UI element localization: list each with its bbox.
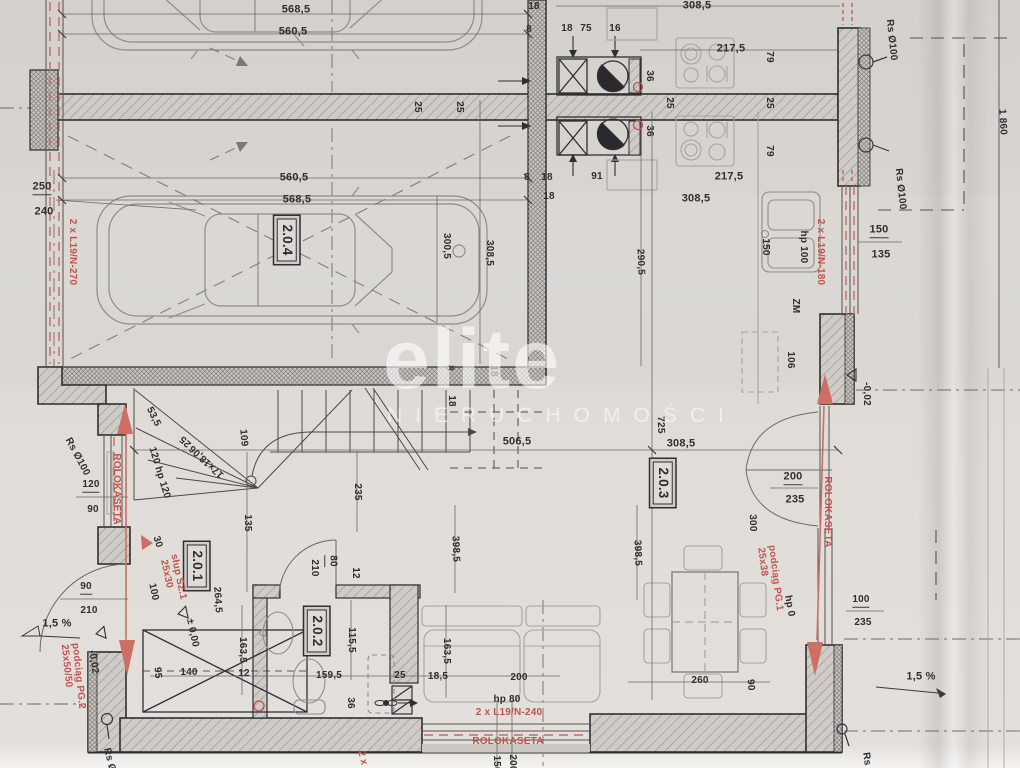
dim-label: 120 [82, 480, 99, 493]
room-label: 2.0.1 [187, 544, 207, 587]
roof-overhang-dashes [878, 38, 1010, 600]
dim-label: 163,5 [237, 637, 247, 663]
dim-label: 91 [591, 172, 603, 182]
dim-label: 18 [561, 24, 573, 34]
dim-label: 150 [870, 224, 889, 238]
vent-shaft [392, 686, 412, 714]
dim-label: 18 [541, 173, 553, 183]
dim-label: 90 [87, 505, 99, 515]
dim-label: 560,5 [280, 173, 309, 184]
dim-label: 290,5 [635, 249, 646, 275]
dim-label: 18 [543, 192, 555, 202]
dim-label: 106 [785, 351, 795, 368]
dim-label: 1 860 [996, 109, 1007, 136]
dim-label: 30 [151, 535, 164, 549]
dim-label: 398,5 [632, 540, 643, 566]
dim-label: 16 [609, 24, 621, 34]
annotation-label: 2 x [355, 750, 368, 767]
dim-label: 235 [786, 495, 805, 506]
annotation-label: 25x38 [755, 547, 768, 577]
dim-label: -0,02 [861, 382, 871, 406]
dim-label: 90 [745, 679, 756, 691]
rain-spout-icon [102, 55, 890, 746]
dim-label: 210 [309, 559, 319, 576]
dim-label: 235 [854, 618, 871, 628]
dim-label: 150 [760, 238, 770, 255]
dim-label: 568,5 [283, 195, 312, 206]
dim-label: 25 [664, 97, 674, 109]
dim-label: 506,5 [503, 437, 532, 448]
dim-label: 8 [526, 25, 532, 35]
dim-label: 200 [784, 471, 803, 485]
dim-label: 398,5 [450, 536, 461, 562]
understair-box [143, 630, 307, 712]
dim-label: 115,5 [346, 627, 356, 652]
dim-label: 159,5 [316, 671, 342, 681]
dim-label: 140 [180, 668, 197, 678]
dim-label: 95 [152, 667, 163, 679]
level-markers [95, 369, 856, 640]
dim-label: 36 [644, 70, 654, 82]
dim-label: 210 [80, 606, 97, 616]
floor-plan-photo: 568,5560,5188187516308,5217,579362525252… [0, 0, 1020, 768]
dim-label: ZM [790, 299, 800, 314]
dim-label: 200 [507, 754, 517, 768]
dim-label: 217,5 [715, 172, 744, 183]
dim-label: 18 [488, 365, 498, 377]
dim-label: 308,5 [683, 1, 712, 12]
dim-label: 308,5 [484, 240, 494, 266]
dim-label: hp 80 [493, 695, 520, 705]
dim-label: 1,5 % [42, 619, 71, 630]
dim-label: 12 [238, 669, 250, 679]
dim-label: 75 [580, 24, 592, 34]
dim-label: 25 [412, 101, 422, 113]
dim-label: 217,5 [717, 44, 746, 55]
dim-label: 8 [444, 365, 454, 371]
annotation-label: ROLOKASETA [822, 476, 832, 547]
annotation-label: ROLOKASETA [472, 737, 543, 747]
room-label: 2.0.3 [653, 461, 673, 504]
dim-label: 80 [325, 555, 338, 567]
dim-label: 300 [747, 514, 758, 532]
dim-label: 150 [491, 755, 501, 768]
dim-label: 100 [852, 595, 869, 608]
dim-label: 25 [394, 671, 406, 681]
dim-label: 308,5 [667, 439, 696, 450]
room-label: 2.0.2 [307, 609, 327, 652]
dim-label: 308,5 [682, 194, 711, 205]
dim-label: 79 [764, 51, 774, 63]
dim-label: 18 [446, 395, 456, 407]
dim-label: 25 [764, 97, 774, 109]
dim-label: 1,5 % [906, 672, 935, 683]
dim-label: 109 [237, 429, 248, 447]
dim-label: 135 [242, 514, 252, 531]
dim-label: 568,5 [282, 5, 311, 16]
dim-label: 100 [146, 583, 159, 602]
annotation-label: ROLOKASETA [111, 453, 121, 524]
dim-label: hp 100 [798, 231, 808, 264]
dim-label: 12 [350, 567, 360, 579]
dim-label: 36 [345, 697, 355, 709]
dim-label: 250 [33, 181, 52, 195]
dim-label: 18 [528, 2, 540, 12]
dim-label: 163,5 [441, 638, 451, 664]
dim-label: -0,02 [86, 650, 99, 675]
doors [40, 412, 832, 652]
dim-label: 725 [655, 416, 666, 434]
room-label: 2.0.4 [277, 218, 297, 261]
dim-label: 560,5 [279, 27, 308, 38]
dim-label: 8 [524, 173, 530, 183]
annotation-label: 2 x L19/N-270 [67, 219, 77, 286]
dim-label: 264,5 [211, 587, 223, 614]
annotation-label: 2 x L19/N-240 [476, 708, 543, 718]
annotation-label: 2 x L19/N-180 [815, 219, 825, 286]
dim-label: 300,5 [441, 233, 451, 259]
dim-label: Rs [860, 752, 872, 766]
dim-label: 79 [764, 145, 774, 157]
dim-label: 235 [352, 483, 362, 500]
dim-label: 260 [691, 676, 708, 686]
dim-label: 90 [80, 582, 92, 595]
dim-label: 200 [510, 673, 527, 683]
dim-label: 36 [644, 125, 654, 137]
dim-label: 240 [35, 207, 54, 218]
dim-label: 18,5 [428, 672, 448, 682]
dim-label: 25 [454, 101, 464, 113]
dim-label: 135 [872, 250, 891, 261]
circulation-arrows-red [117, 374, 833, 676]
